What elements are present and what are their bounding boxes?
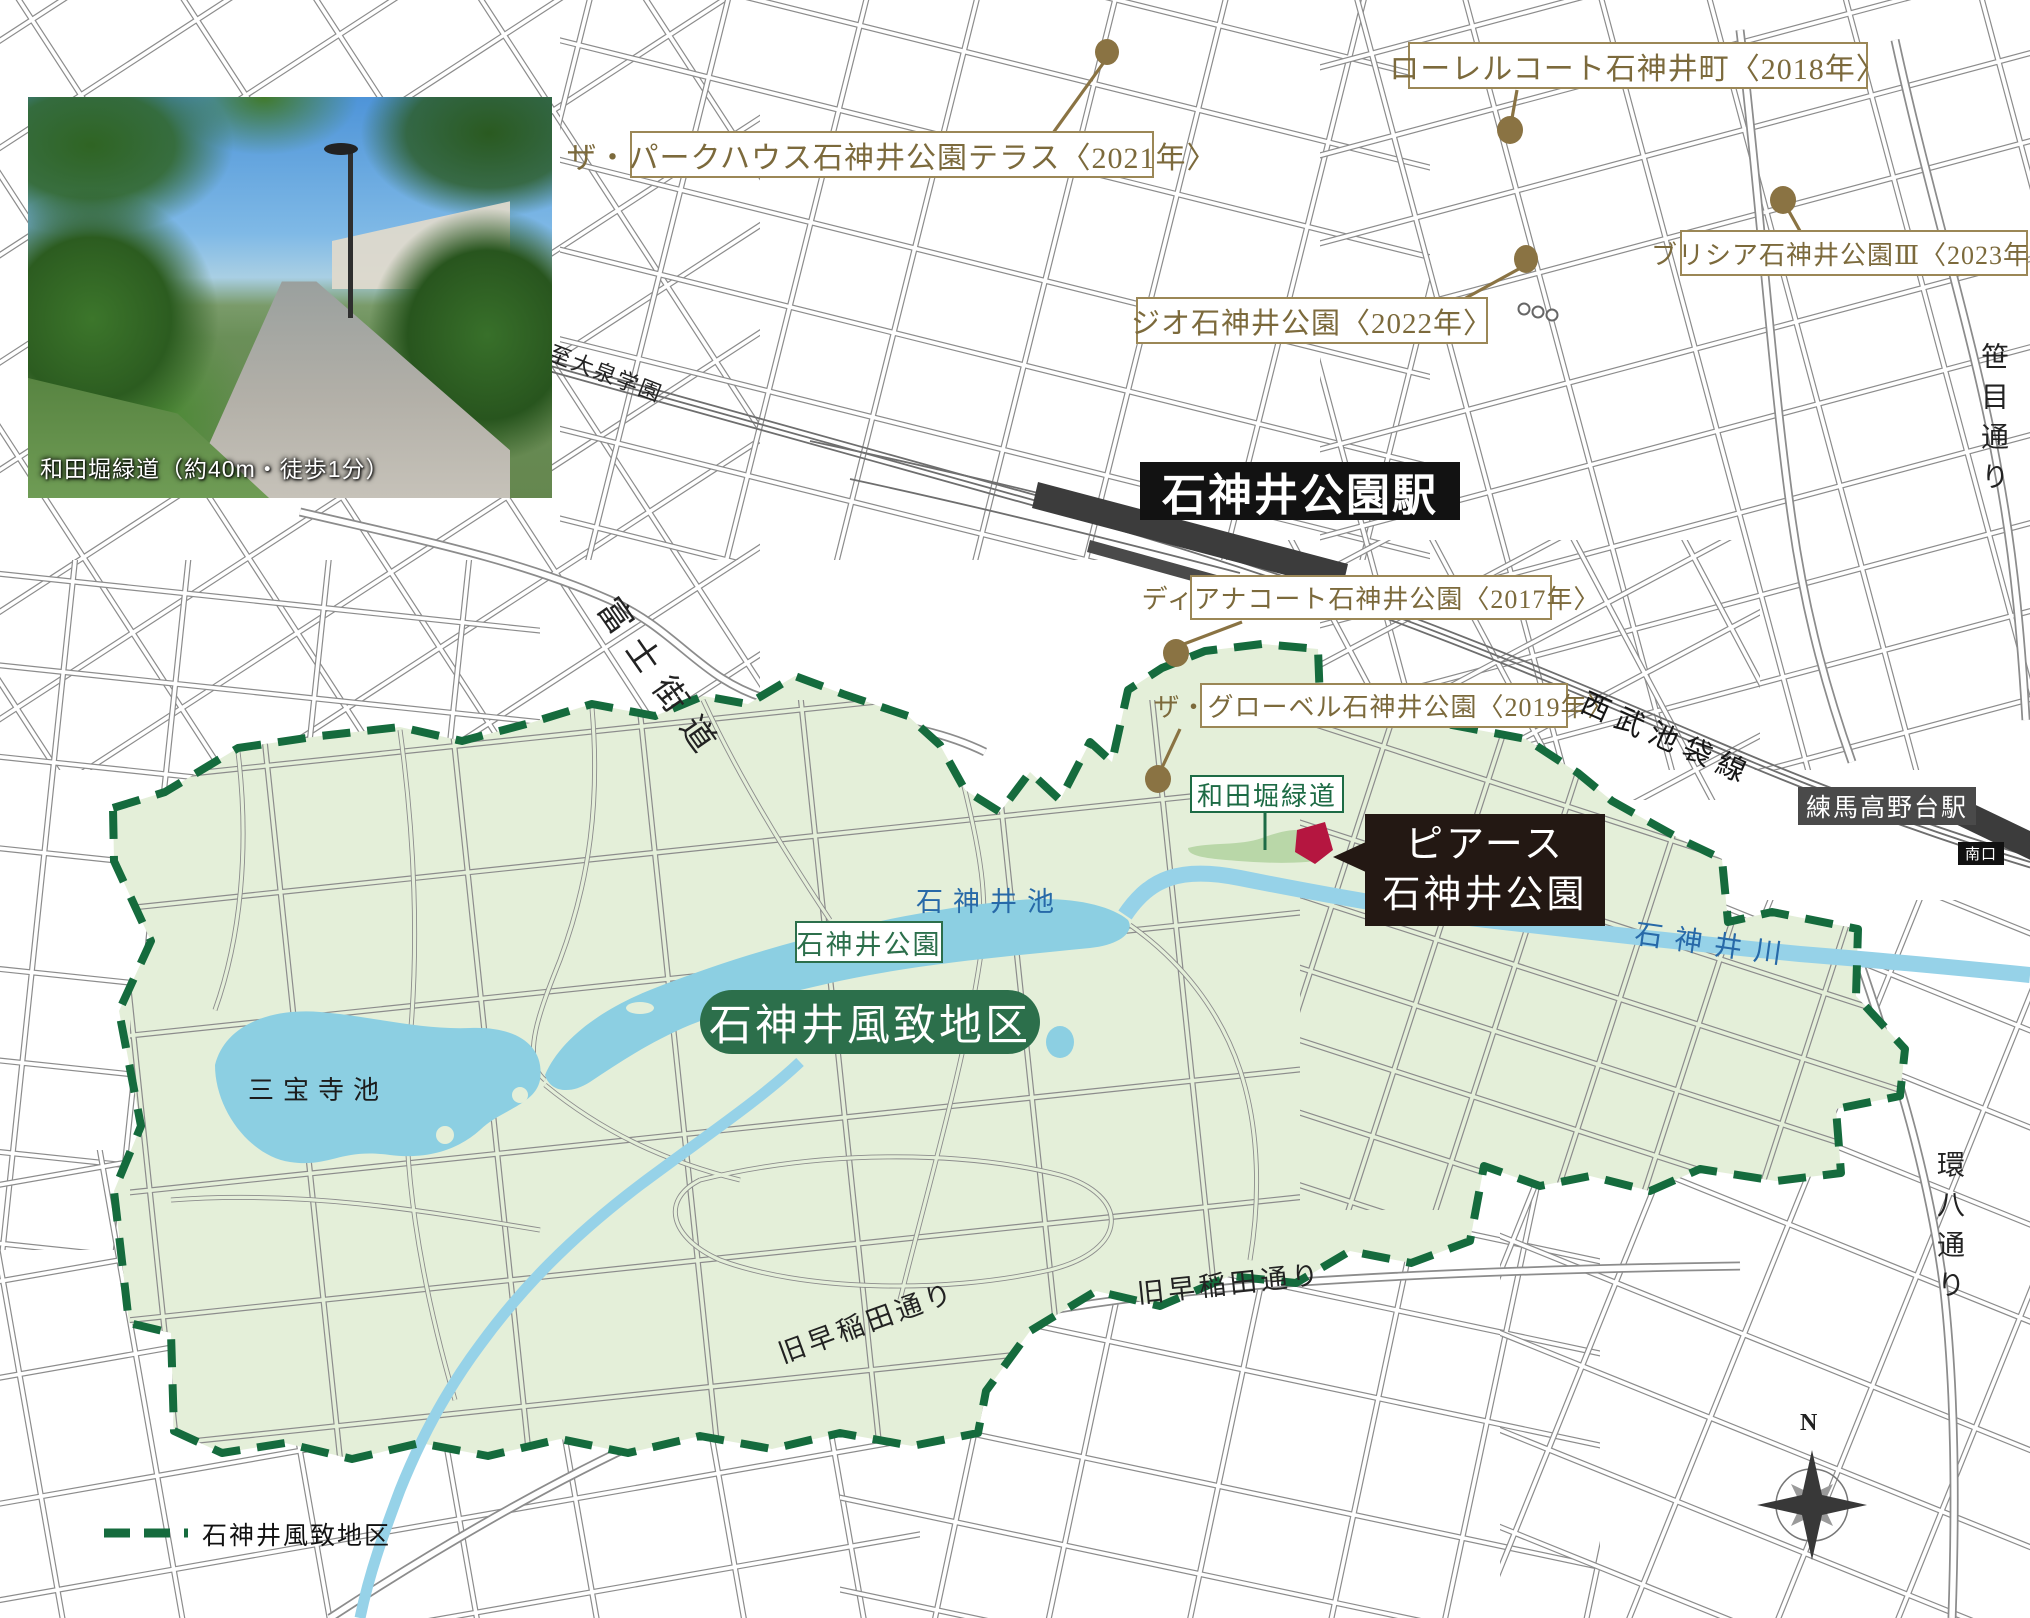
condo-label-laurel: ローレルコート石神井町〈2018年〉 xyxy=(1408,42,1868,89)
sanpoji-pond-label: 三宝寺池 xyxy=(248,1070,388,1107)
shakujii-pond-label: 石神井池 xyxy=(916,880,1064,919)
station-label-nerima-takanodai: 練馬高野台駅 xyxy=(1798,787,1976,825)
globel-dot xyxy=(1145,765,1171,793)
scenic-district-badge: 石神井風致地区 xyxy=(700,990,1040,1054)
greenway-photo: 和田堀緑道（約40m・徒歩1分） xyxy=(28,97,552,498)
station-south-exit-label: 南口 xyxy=(1958,842,2004,865)
diana-dot xyxy=(1163,639,1189,667)
compass-north-label: N xyxy=(1800,1410,1817,1437)
sasame-dori-label: 笹目通り xyxy=(1972,342,2012,502)
shakujii-park-label: 石神井公園 xyxy=(795,921,943,963)
laurel-dot xyxy=(1497,116,1523,144)
geo-dot xyxy=(1514,245,1538,273)
condo-label-brillia: ブリシア石神井公園Ⅲ〈2023年〉 xyxy=(1680,230,2028,276)
brillia-dot xyxy=(1770,186,1796,214)
pearce-site-label: ピアース 石神井公園 xyxy=(1365,814,1605,926)
condo-label-geo: ジオ石神井公園〈2022年〉 xyxy=(1136,297,1488,344)
condo-label-diana: ディアナコート石神井公園〈2017年〉 xyxy=(1190,575,1552,620)
pearce-line1: ピアース xyxy=(1405,820,1565,870)
condo-label-globel: ザ・グローベル石神井公園〈2019年〉 xyxy=(1200,683,1568,728)
pearce-line2: 石神井公園 xyxy=(1382,870,1587,920)
parkhouse-dot xyxy=(1095,39,1119,65)
station-label-shakujii-koen: 石神井公園駅 xyxy=(1140,462,1460,520)
photo-caption: 和田堀緑道（約40m・徒歩1分） xyxy=(40,450,390,484)
kanpachi-dori-label: 環八通り xyxy=(1928,1150,1968,1310)
shakujii-area-map: { "photo": { "caption": "和田堀緑道（約40m・徒歩1分… xyxy=(0,0,2030,1618)
condo-label-parkhouse: ザ・パークハウス石神井公園テラス〈2021年〉 xyxy=(630,131,1154,178)
greenway-label: 和田堀緑道 xyxy=(1190,775,1344,813)
legend-district-label: 石神井風致地区 xyxy=(202,1516,391,1552)
photo-lamppost xyxy=(348,149,353,317)
